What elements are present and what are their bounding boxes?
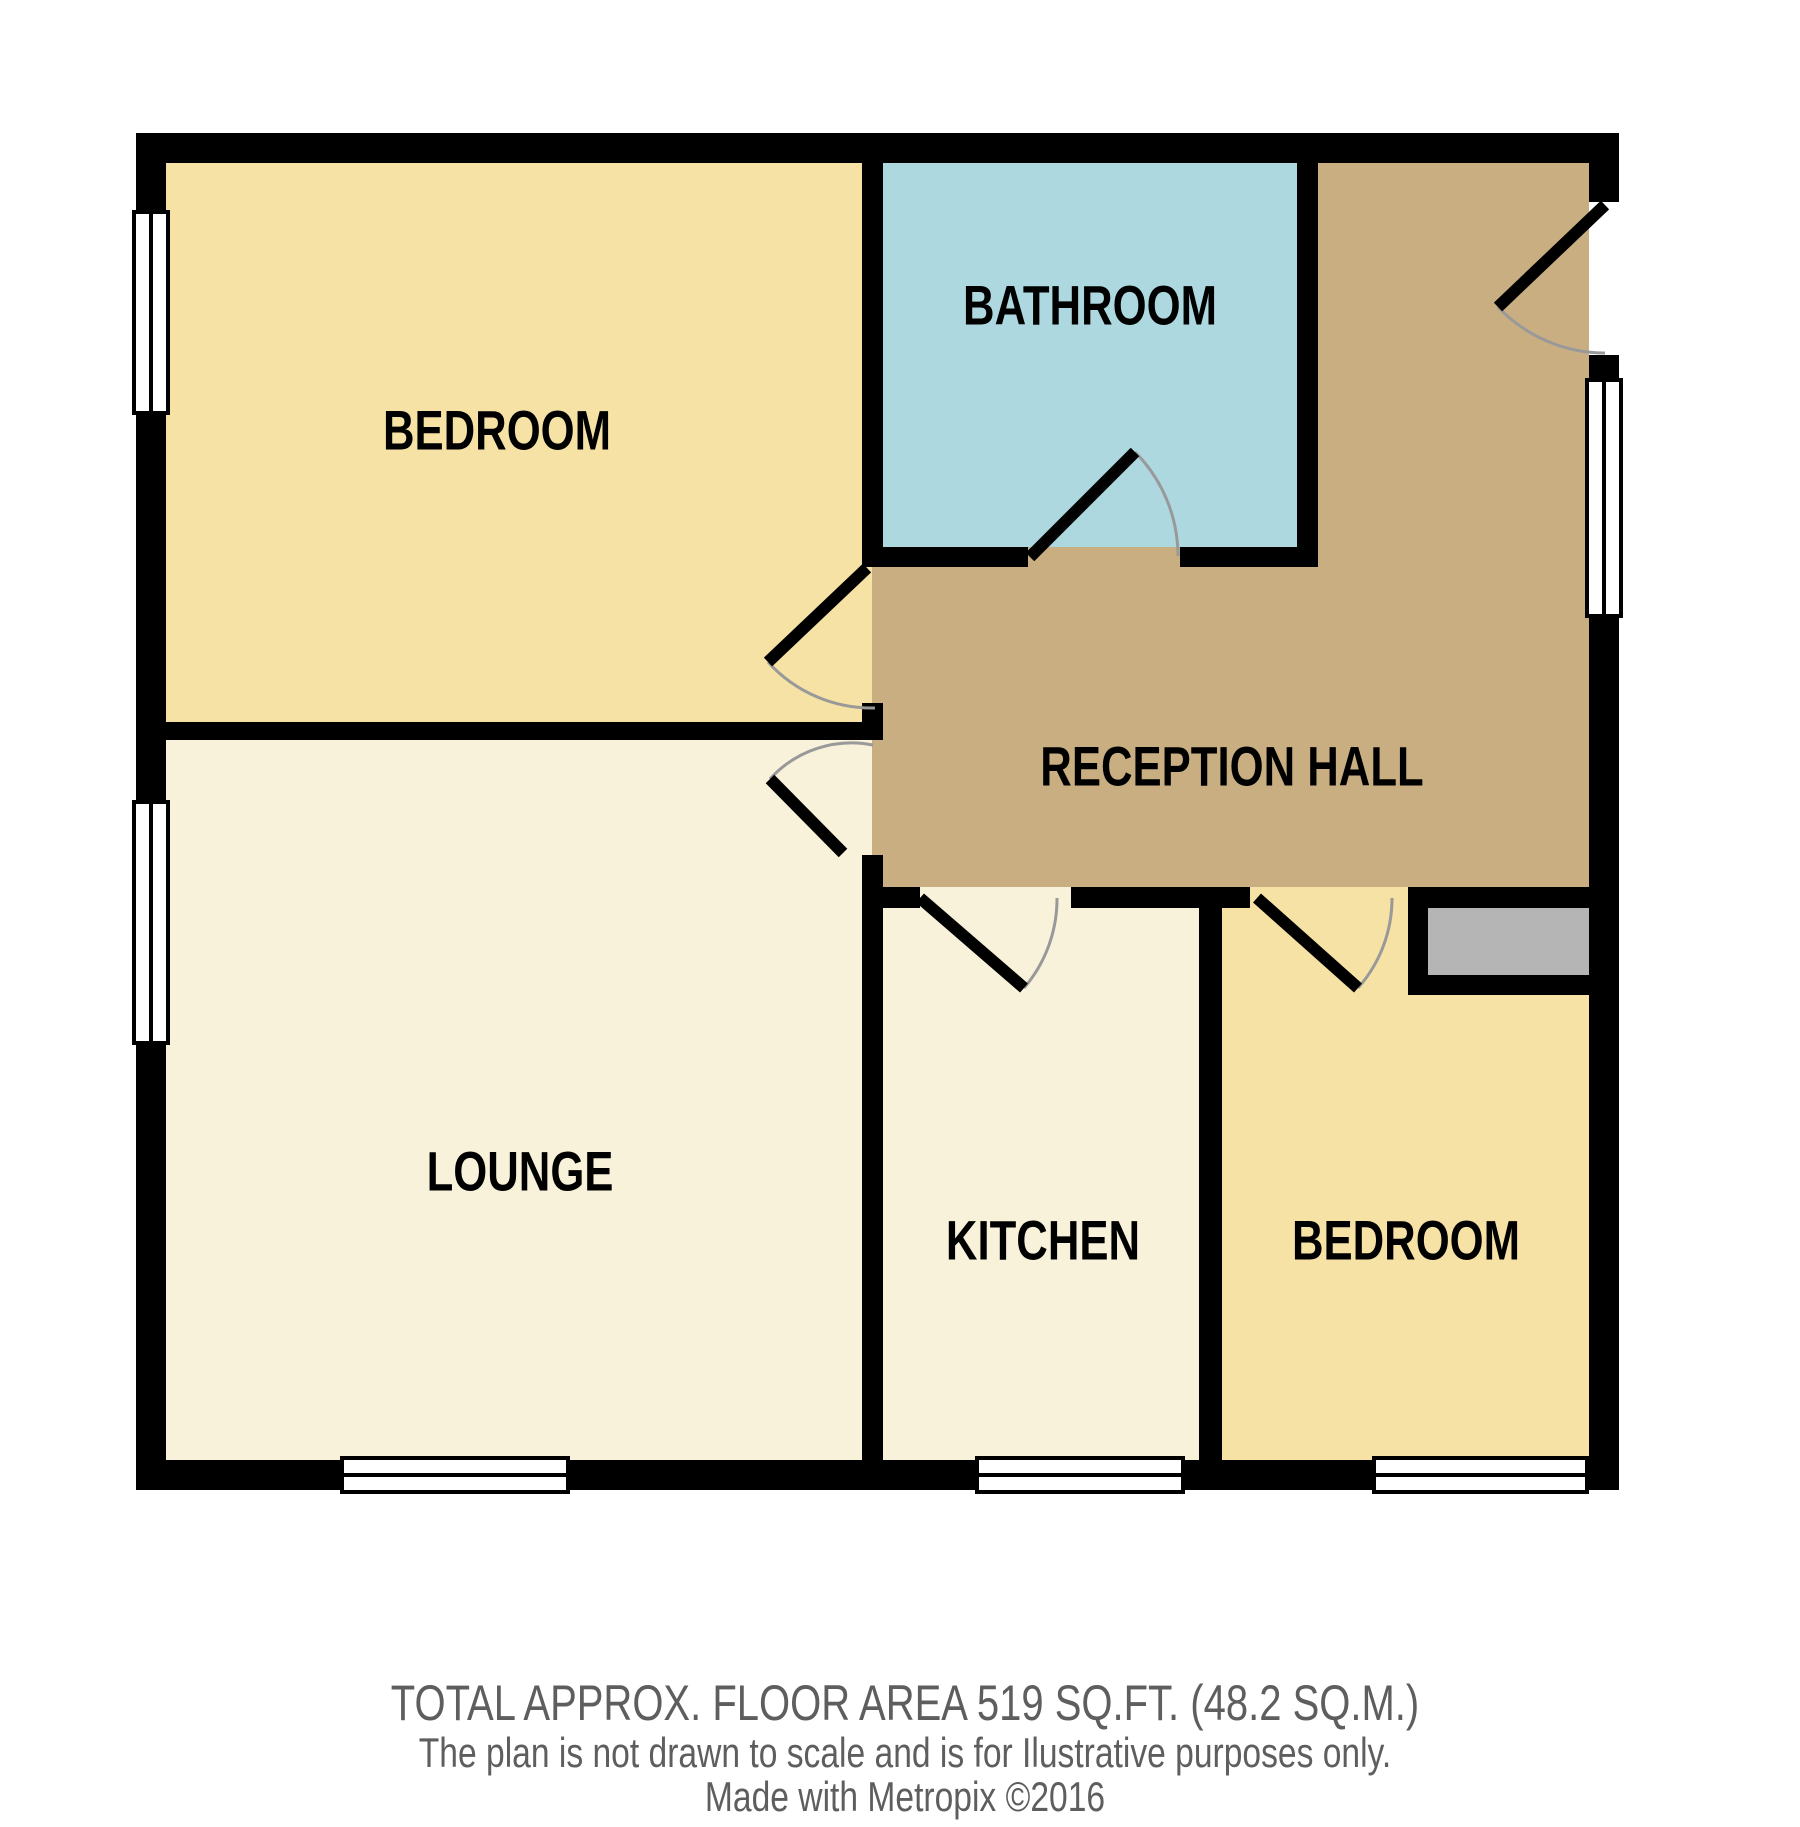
bedroom-top-door-leaf [768,568,867,662]
lounge-label: LOUNGE [427,1139,614,1204]
lounge-door-arc [770,743,873,779]
kitchen-door-arc [1024,898,1057,988]
entrance-door-leaf [1498,205,1605,307]
bathroom-door-leaf [1030,452,1135,557]
footer-credit-text: Made with Metropix ©2016 [705,1773,1105,1821]
bedroom-top-label: BEDROOM [383,398,611,463]
bedroom-right-door-leaf [1257,898,1358,988]
bedroom-right-label: BEDROOM [1292,1208,1520,1273]
kitchen-door-leaf [920,898,1024,988]
bathroom-door-arc [1135,452,1178,556]
bathroom-label: BATHROOM [963,273,1217,338]
footer-disclaimer-text: The plan is not drawn to scale and is fo… [419,1729,1391,1777]
lounge-door-leaf [770,779,843,853]
reception-hall-label: RECEPTION HALL [1040,734,1423,799]
bedroom-top-door-arc [768,662,875,708]
floorplan-canvas: BEDROOM BATHROOM RECEPTION HALL LOUNGE K… [0,0,1800,1827]
footer-area-text: TOTAL APPROX. FLOOR AREA 519 SQ.FT. (48.… [391,1674,1419,1732]
kitchen-label: KITCHEN [946,1208,1140,1273]
entrance-door-arc [1498,307,1605,353]
doors-layer [0,0,1800,1827]
bedroom-right-door-arc [1358,898,1392,988]
